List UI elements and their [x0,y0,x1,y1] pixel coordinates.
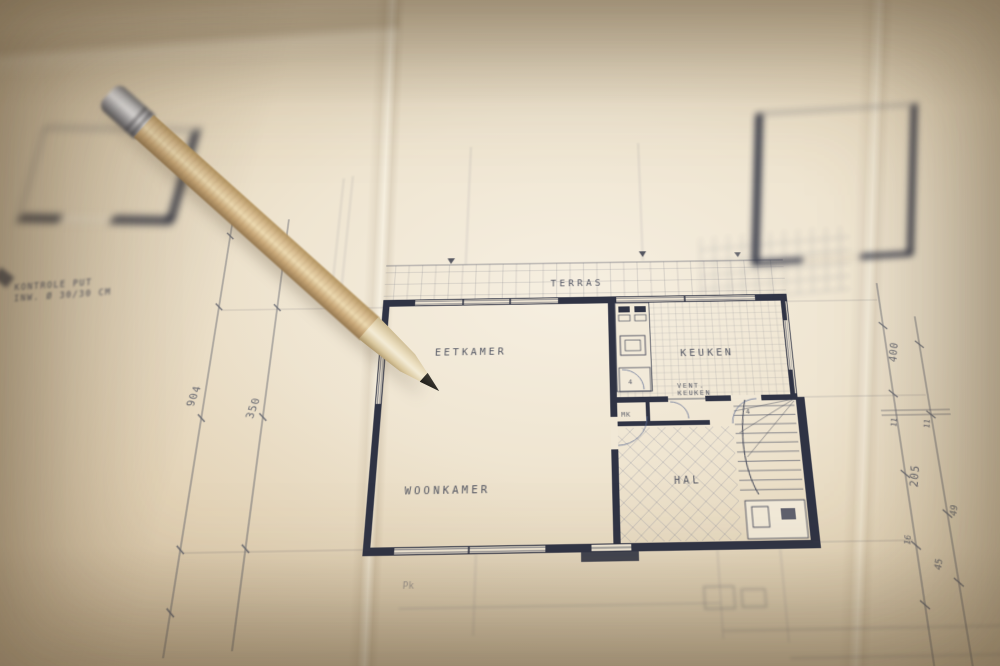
dimension-11a: 11 [889,417,899,428]
room-label-hal: HAL [674,475,702,487]
dimension-400: 400 [888,341,901,363]
room-label-woonkamer: WOONKAMER [404,484,490,498]
door-gap [60,215,112,223]
kitchen-counter [615,303,653,392]
staircase [733,397,809,539]
door-mark: 4 [745,408,750,416]
room-label-terras: TERRAS [551,278,604,289]
under-stair-closet [745,500,809,539]
dimension-45: 45 [932,557,945,571]
door-mark: 4 [628,378,632,386]
lower-right-faint-marks [704,580,1000,659]
dimension-350: 350 [244,397,263,420]
survey-tick-icon [639,251,647,257]
dimension-205: 205 [909,464,923,489]
room-label-keuken: KEUKEN [680,348,734,360]
dimension-11b: 11 [922,418,932,429]
dimension-904: 904 [185,385,204,408]
room-label-mk: MK [621,411,631,418]
room-label-eetkamer: EETKAMER [435,347,507,359]
dimension-49: 49 [947,504,959,517]
room-label-vent-line2: KEUKEN [677,389,711,398]
survey-tick-icon [447,258,455,264]
blueprint-photo: TERRAS [0,0,1000,666]
garage-terrace-grid [700,225,851,302]
dimension-lines-right [785,282,998,666]
dimension-16: 16 [902,534,913,546]
bottom-mark-pk: Pk [402,579,414,591]
